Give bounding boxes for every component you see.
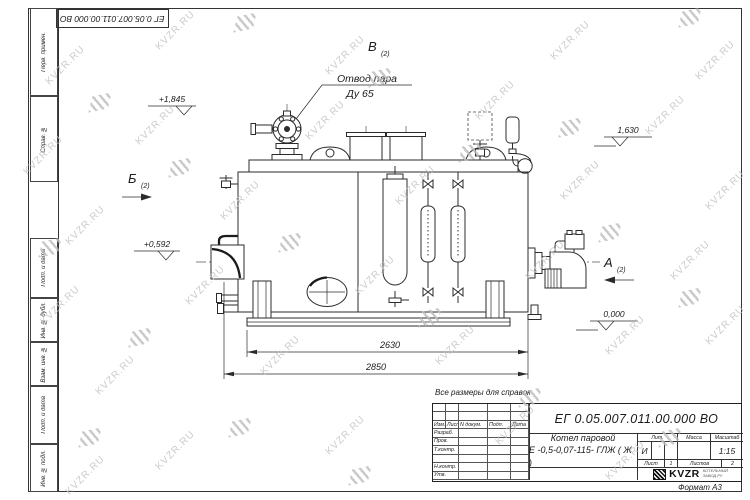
drawing-sheet: Перв. примен. Справ. № Подп. и дата Инв.… <box>0 0 750 500</box>
elevation-top-left: +1,845 <box>159 94 186 104</box>
view-label-b: Б <box>128 171 137 186</box>
view-sheet-ref: (2) <box>141 183 150 190</box>
boiler-drawing: 2630 2850 +1,845 1,630 +0,592 0,000 Б (2… <box>0 0 750 500</box>
view-label-a: А <box>603 255 613 270</box>
safety-valve-boxes <box>347 133 426 161</box>
base-frame <box>247 318 510 326</box>
view-sheet-ref: (2) <box>617 267 626 274</box>
manhole <box>307 278 347 307</box>
steam-outlet-valve <box>251 111 302 160</box>
callout-line1: Отвод пара <box>337 73 397 85</box>
elevation-top-right: 1,630 <box>617 125 639 135</box>
feed-pump <box>528 231 586 320</box>
view-label-v: В <box>368 39 377 54</box>
steam-outlet-callout: Отвод пара Ду 65 <box>296 73 412 119</box>
callout-line2: Ду 65 <box>345 88 374 100</box>
elevation-base: 0,000 <box>603 309 625 319</box>
elevation-mid-left: +0,592 <box>144 239 171 249</box>
dimension-overall: 2850 <box>365 362 386 372</box>
view-sheet-ref: (2) <box>381 51 390 58</box>
dimension-inner: 2630 <box>379 340 400 350</box>
